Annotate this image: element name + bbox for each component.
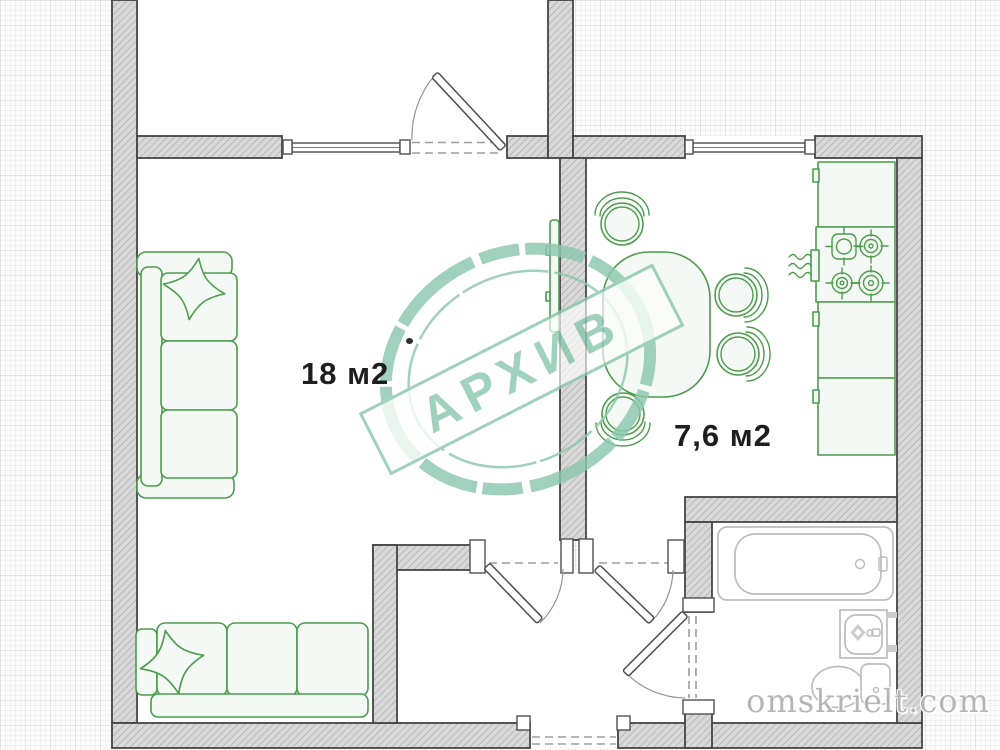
door-jamb bbox=[579, 539, 593, 573]
cabinet-handle bbox=[813, 312, 819, 326]
door-jamb bbox=[561, 539, 573, 573]
stove-handle bbox=[811, 250, 819, 281]
room-label-living: 18 м2 bbox=[301, 356, 389, 392]
door-jamb bbox=[517, 716, 530, 730]
sofa-large bbox=[137, 252, 237, 498]
sofa-cushion bbox=[227, 623, 297, 696]
window-cap bbox=[400, 140, 410, 154]
sofa-seat-base bbox=[151, 694, 368, 717]
wall-segment bbox=[618, 723, 922, 748]
door-jamb bbox=[668, 540, 684, 573]
sofa-small bbox=[134, 623, 368, 717]
ink-dot bbox=[406, 338, 413, 344]
hallway-floor bbox=[397, 570, 685, 723]
wall-segment bbox=[548, 0, 573, 158]
door-jamb bbox=[683, 700, 714, 714]
counter-cabinet bbox=[818, 302, 895, 378]
door-jamb bbox=[683, 598, 714, 612]
sofa-cushion bbox=[161, 341, 237, 410]
wall-segment bbox=[112, 0, 137, 723]
window-cap bbox=[283, 140, 292, 154]
cabinet-handle bbox=[813, 390, 819, 403]
wall-segment bbox=[897, 158, 922, 723]
door-jamb bbox=[470, 540, 485, 573]
floor-plan: АРХИВ 18 м2 7,6 м2 omskrielt.com bbox=[0, 0, 1000, 750]
room-label-kitchen: 7,6 м2 bbox=[674, 418, 772, 454]
counter-cabinet bbox=[818, 162, 895, 227]
balcony-floor bbox=[137, 0, 548, 136]
dining-table bbox=[603, 252, 710, 397]
sofa-backrest bbox=[141, 267, 162, 486]
wall-segment bbox=[112, 723, 530, 748]
sofa-cushion bbox=[297, 623, 368, 696]
site-watermark: omskrielt.com bbox=[740, 682, 996, 720]
wall-segment bbox=[560, 158, 586, 540]
wall-segment bbox=[685, 497, 897, 522]
wall-segment bbox=[815, 136, 922, 158]
door-jamb bbox=[617, 716, 630, 730]
wall-segment bbox=[137, 136, 282, 158]
tv-bracket bbox=[546, 246, 550, 255]
floor-plan-drawing bbox=[0, 0, 1000, 750]
window-cap bbox=[805, 140, 815, 154]
wall-segment bbox=[373, 545, 397, 723]
tv-bracket bbox=[546, 292, 550, 301]
sofa-cushion bbox=[161, 410, 237, 478]
wall-segment bbox=[573, 136, 685, 158]
bathtub bbox=[718, 527, 893, 600]
counter-cabinet bbox=[818, 378, 895, 455]
window-cap bbox=[685, 140, 693, 154]
cabinet-handle bbox=[813, 169, 819, 182]
wall-segment bbox=[507, 136, 548, 158]
